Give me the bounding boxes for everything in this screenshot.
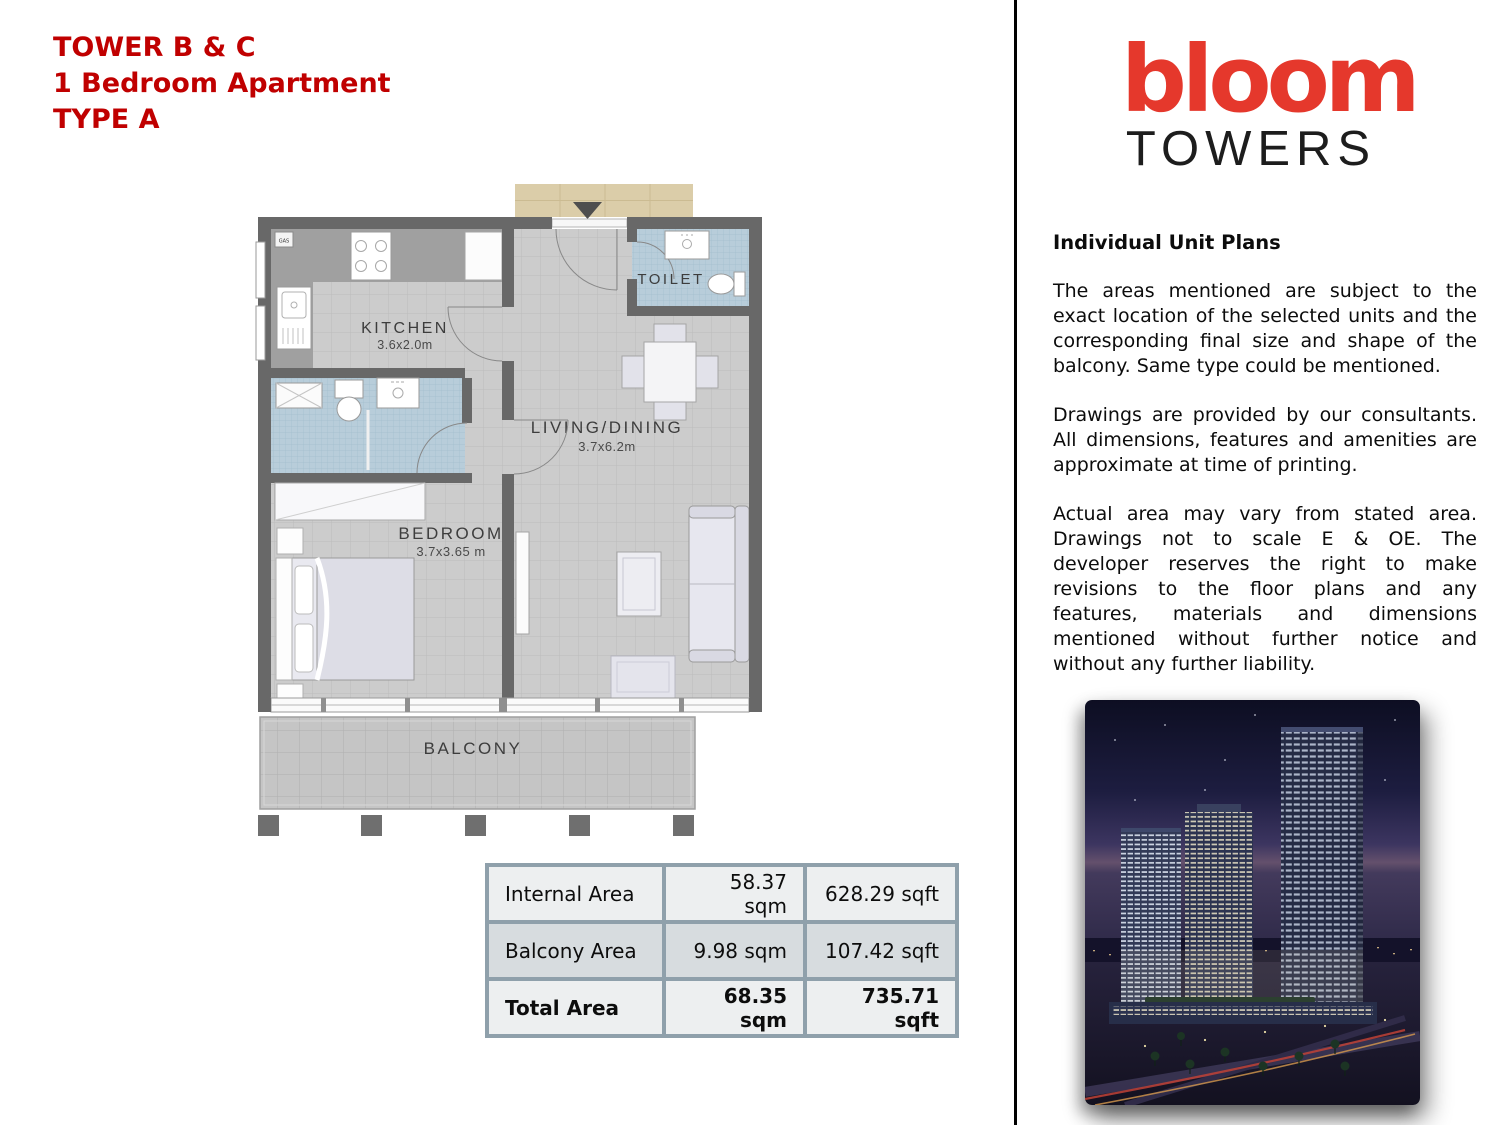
kitchen-label: KITCHEN [361, 320, 449, 337]
bathroom-sink-icon [377, 378, 419, 408]
title-line-1: TOWER B & C [53, 30, 391, 66]
living-dims: 3.7x6.2m [578, 439, 635, 454]
toilet-wc-icon [708, 272, 745, 296]
area-label: Balcony Area [487, 922, 664, 979]
sofa-icon [689, 506, 749, 662]
brochure-page: TOWER B & C 1 Bedroom Apartment TYPE A [0, 0, 1500, 1125]
bedroom-dims: 3.7x3.65 m [416, 544, 485, 559]
bloom-towers-logo: bloom TOWERS [1121, 36, 1381, 174]
coffee-table-icon [617, 552, 661, 616]
rug-icon [611, 656, 675, 698]
fridge-icon [465, 232, 502, 280]
toilet-label: TOILET [637, 271, 704, 288]
disclaimer-text: Individual Unit Plans The areas mentione… [1053, 230, 1477, 701]
pillars [258, 815, 694, 836]
entry-corridor [515, 184, 693, 219]
title-line-2: 1 Bedroom Apartment [53, 66, 391, 102]
balcony-area: BALCONY [260, 717, 695, 809]
building-rendering [1085, 700, 1420, 1105]
kitchen-sink-icon [277, 287, 311, 349]
wardrobe-icon [276, 383, 322, 408]
area-sqm: 68.35 sqm [664, 979, 805, 1036]
table-row-total: Total Area 68.35 sqm 735.71 sqft [487, 979, 957, 1036]
gas-label: GAS [279, 239, 289, 245]
disclaimer-heading: Individual Unit Plans [1053, 230, 1477, 255]
table-row-balcony: Balcony Area 9.98 sqm 107.42 sqft [487, 922, 957, 979]
tv-console-icon [516, 532, 529, 634]
logo-brand: bloom [1121, 36, 1381, 124]
area-sqft: 107.42 sqft [805, 922, 957, 979]
area-sqft: 628.29 sqft [805, 865, 957, 922]
area-sqft: 735.71 sqft [805, 979, 957, 1036]
disclaimer-paragraph: The areas mentioned are subject to the e… [1053, 279, 1477, 379]
toilet-sink-icon [665, 231, 709, 259]
table-row-internal: Internal Area 58.37 sqm 628.29 sqft [487, 865, 957, 922]
title-line-3: TYPE A [53, 102, 391, 138]
bedroom-label: BEDROOM [398, 524, 503, 543]
area-table: Internal Area 58.37 sqm 628.29 sqft Balc… [485, 863, 959, 1038]
area-sqm: 9.98 sqm [664, 922, 805, 979]
living-label: LIVING/DINING [531, 418, 683, 437]
floorplan-drawing: GAS KITCHEN 3.6x2.0m [255, 180, 765, 840]
area-label: Internal Area [487, 865, 664, 922]
bed-icon [276, 558, 414, 680]
stove-icon [351, 232, 391, 280]
bedroom-wardrobe-icon [275, 483, 425, 520]
logo-subtitle: TOWERS [1121, 124, 1381, 174]
disclaimer-paragraph: Actual area may vary from stated area. D… [1053, 502, 1477, 677]
area-sqm: 58.37 sqm [664, 865, 805, 922]
area-label: Total Area [487, 979, 664, 1036]
sidebar: bloom TOWERS Individual Unit Plans The a… [1017, 0, 1500, 1125]
toilet-room: TOILET [627, 229, 749, 316]
kitchen-dims: 3.6x2.0m [377, 338, 432, 352]
balcony-label: BALCONY [424, 739, 523, 758]
nightstand-icon [277, 528, 303, 554]
page-title: TOWER B & C 1 Bedroom Apartment TYPE A [53, 30, 391, 138]
balcony-glass-wall [258, 698, 762, 712]
bathroom-room [271, 378, 472, 483]
disclaimer-paragraph: Drawings are provided by our consultants… [1053, 403, 1477, 478]
